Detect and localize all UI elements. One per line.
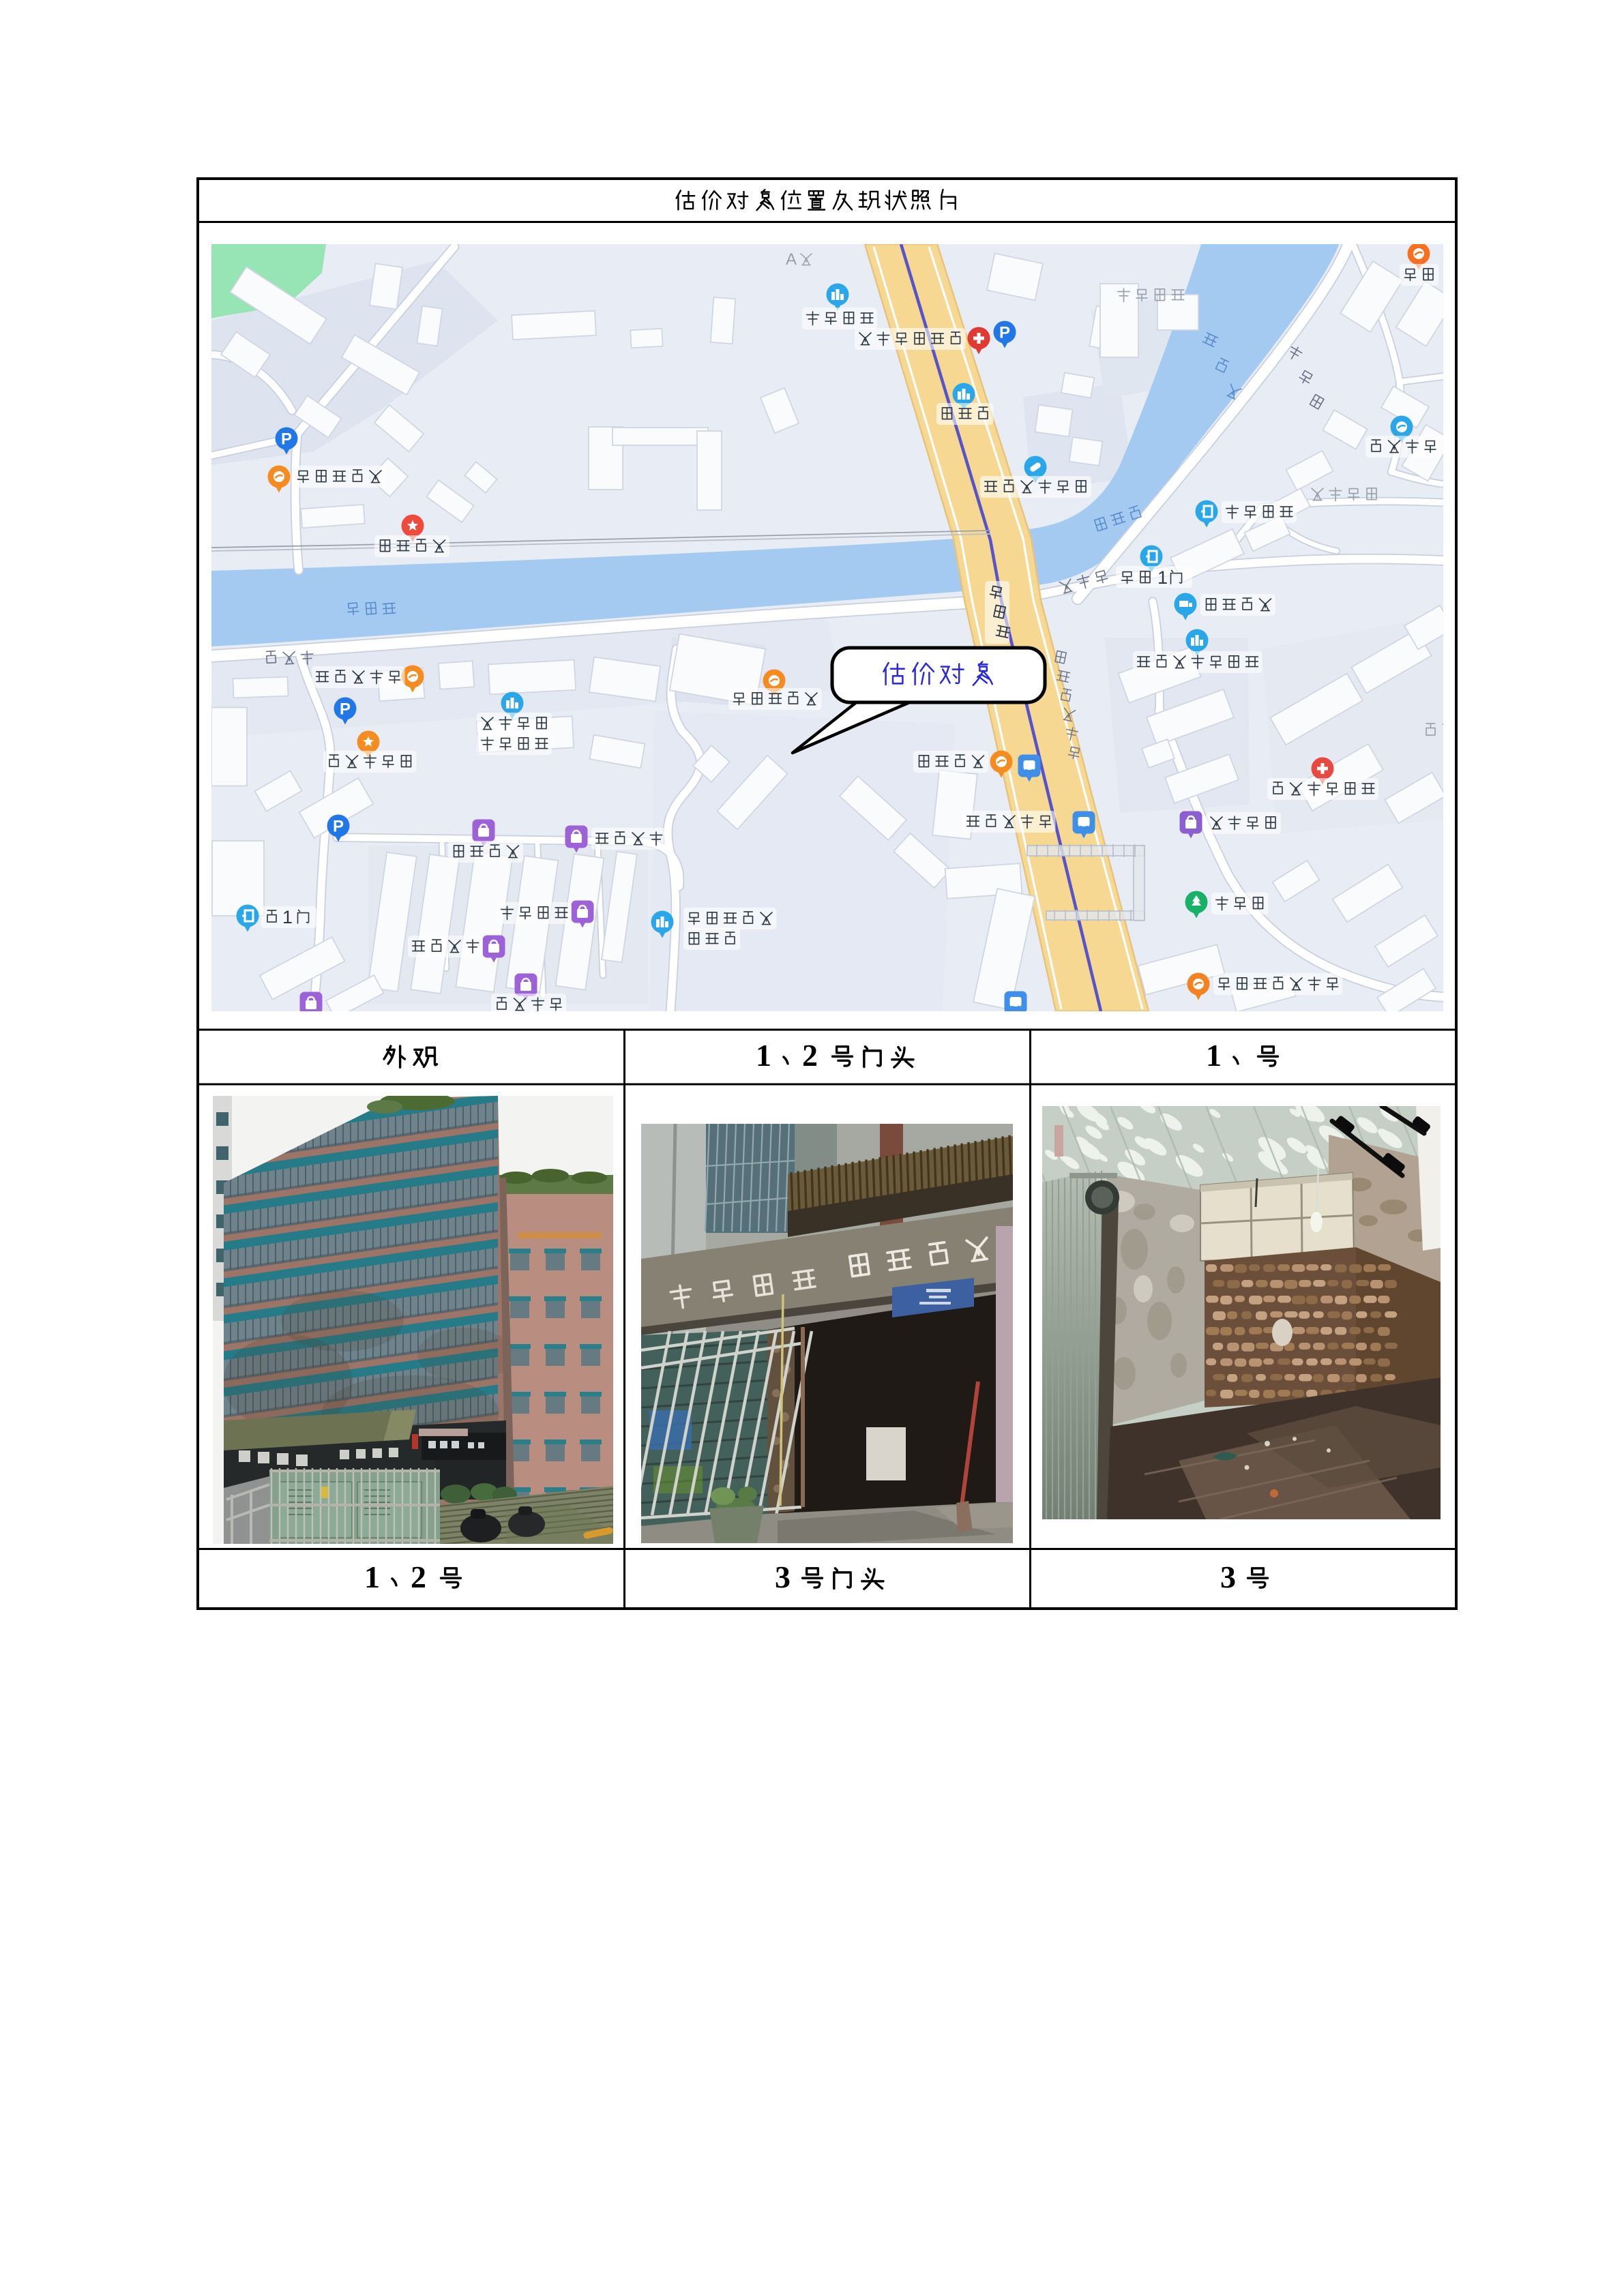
- svg-text:1: 1: [756, 1038, 771, 1073]
- svg-text:3: 3: [1220, 1560, 1236, 1594]
- svg-text:1: 1: [364, 1560, 380, 1594]
- svg-text:1: 1: [1206, 1038, 1222, 1073]
- svg-text:2: 2: [802, 1038, 818, 1073]
- svg-text:2: 2: [411, 1560, 426, 1594]
- svg-text:3: 3: [775, 1560, 791, 1594]
